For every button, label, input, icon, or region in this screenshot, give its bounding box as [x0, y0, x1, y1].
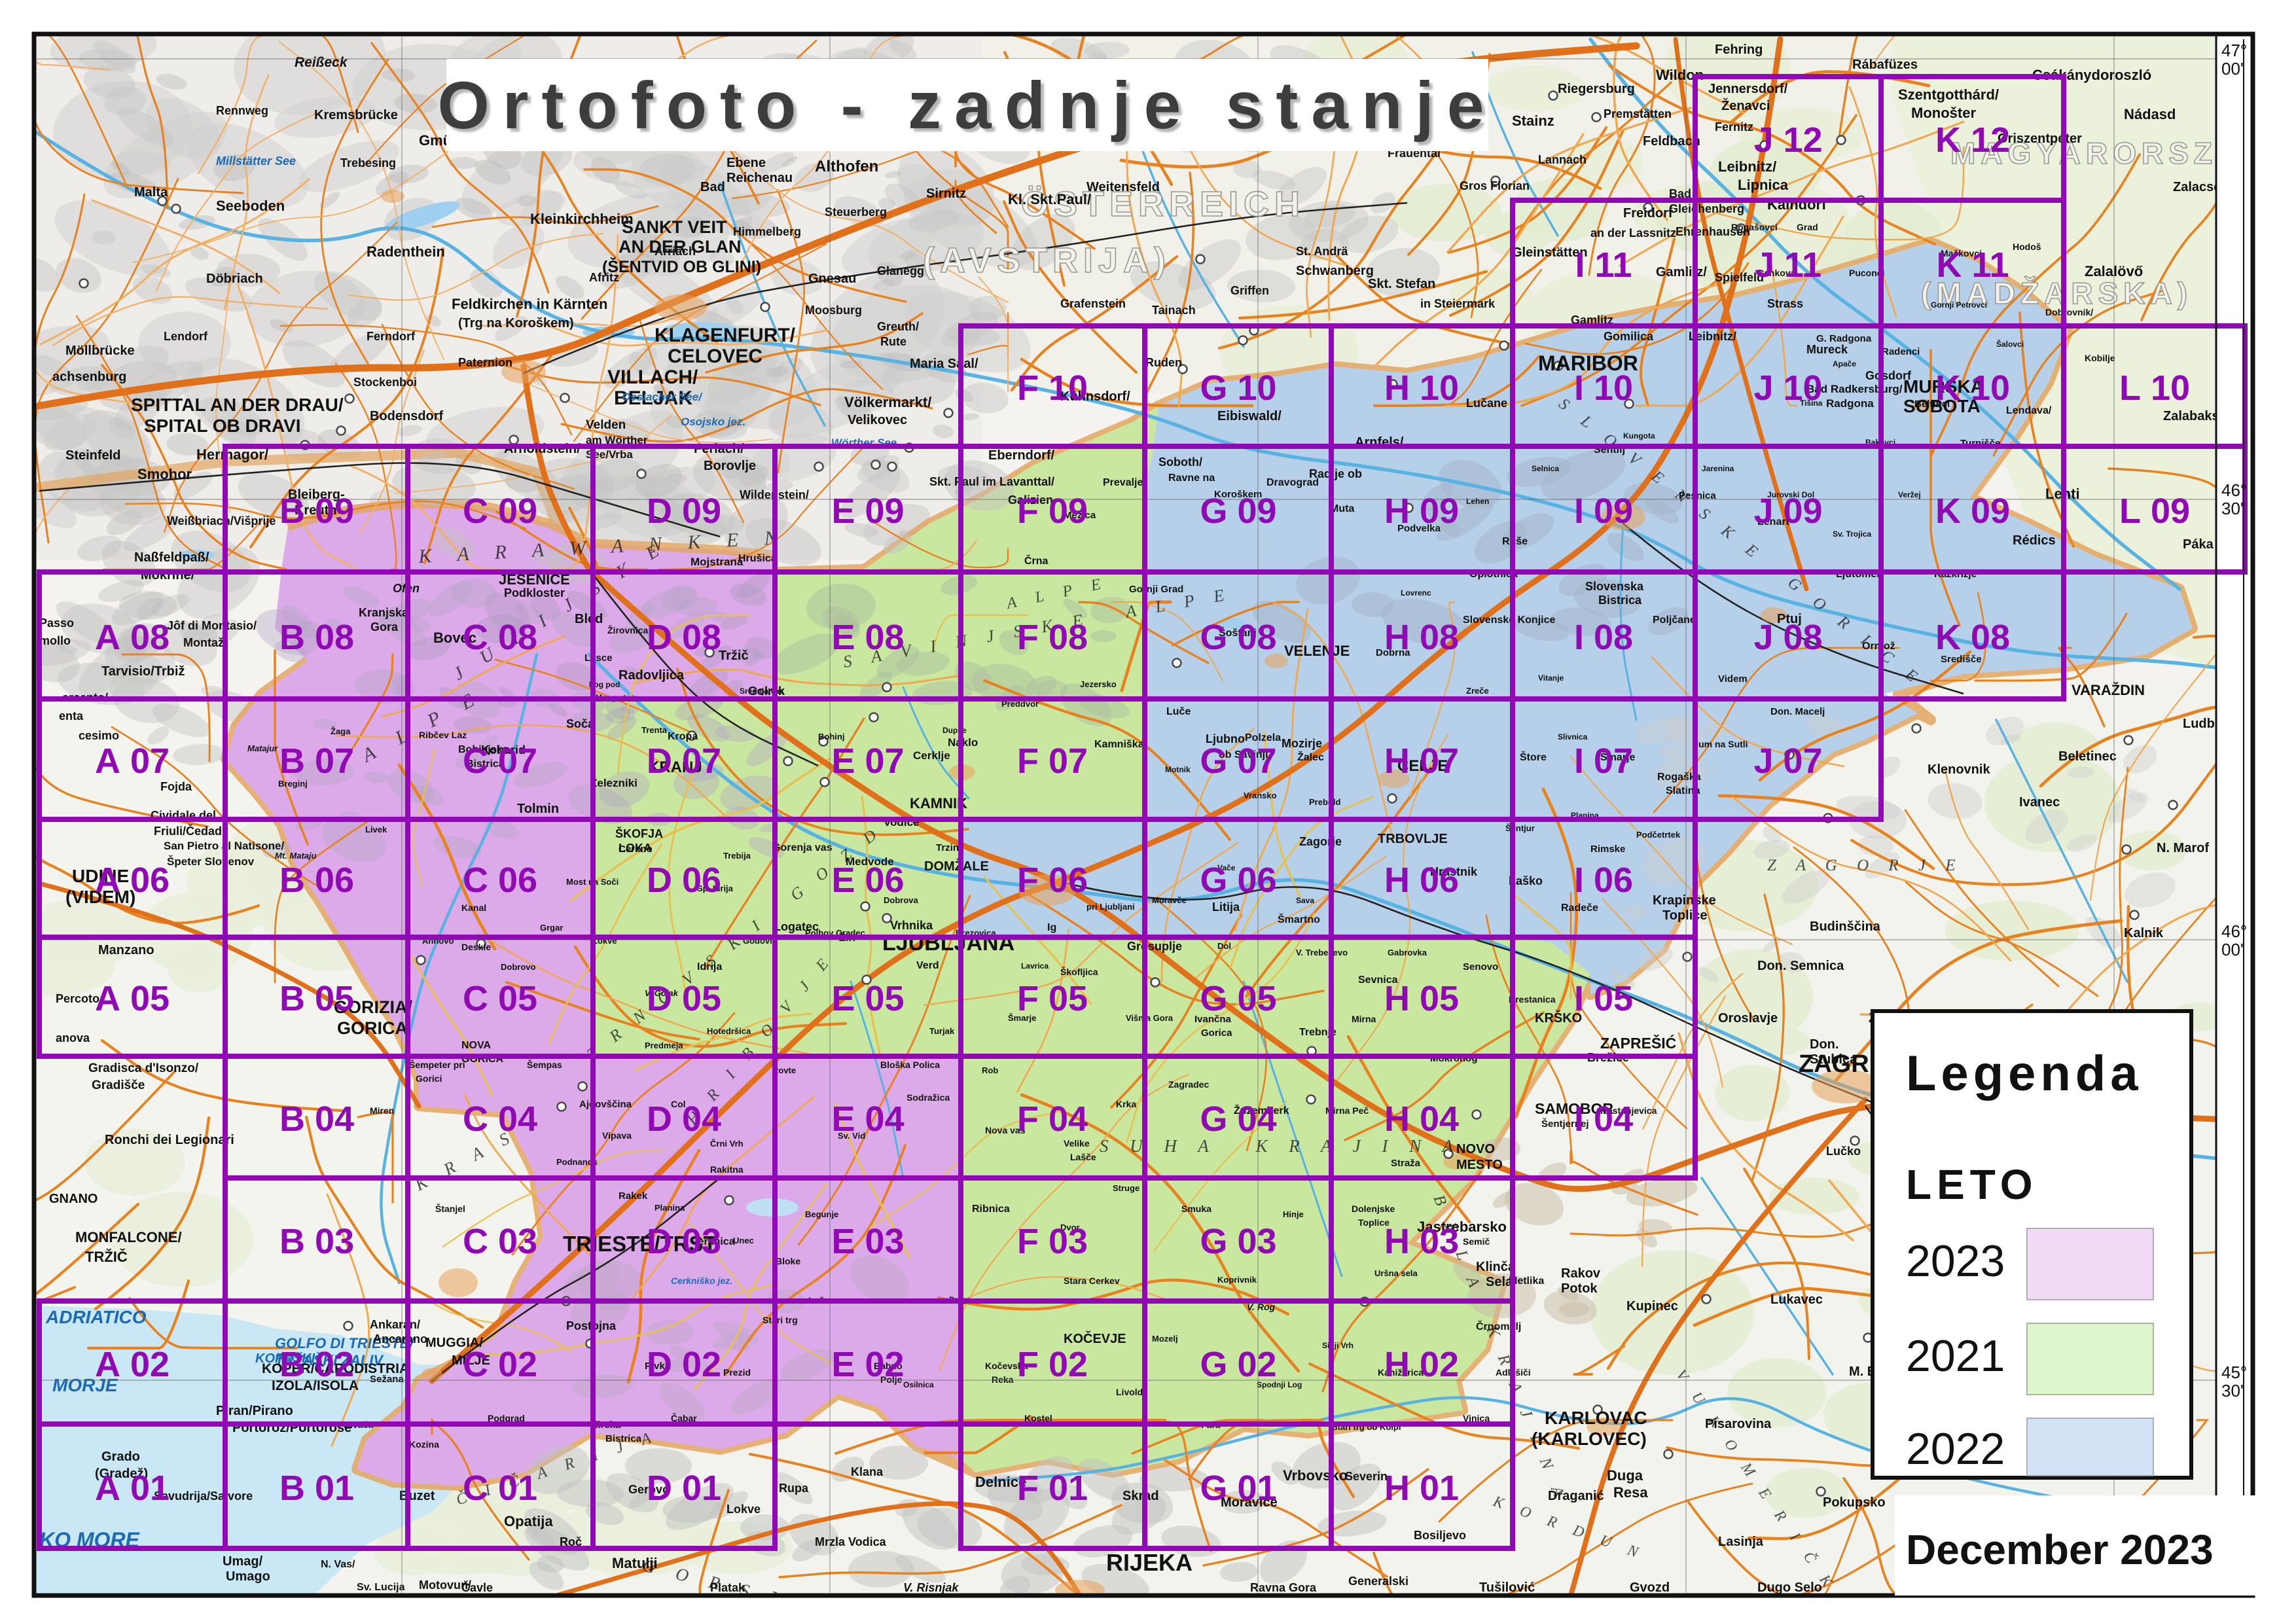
- svg-text:Gornji Petrovci: Gornji Petrovci: [1931, 300, 1987, 310]
- svg-text:ADRIATICO: ADRIATICO: [45, 1307, 147, 1327]
- svg-text:Rennweg: Rennweg: [216, 104, 268, 117]
- svg-text:Gabrovka: Gabrovka: [1388, 948, 1427, 957]
- svg-text:KARLOVAC: KARLOVAC: [1545, 1408, 1647, 1428]
- svg-text:Kozina: Kozina: [409, 1439, 439, 1450]
- svg-text:Lovrenc: Lovrenc: [1401, 588, 1431, 597]
- svg-text:Völkermarkt/: Völkermarkt/: [844, 394, 931, 410]
- svg-text:G 05: G 05: [1200, 979, 1276, 1018]
- svg-text:VILLACH/: VILLACH/: [607, 366, 698, 388]
- svg-text:an der Lassnitz: an der Lassnitz: [1590, 226, 1676, 240]
- svg-text:Eibiswald/: Eibiswald/: [1217, 409, 1282, 423]
- svg-text:H 10: H 10: [1384, 368, 1459, 408]
- svg-text:Rakek: Rakek: [619, 1190, 648, 1202]
- svg-text:Draganić: Draganić: [1548, 1489, 1604, 1503]
- svg-text:Pokupsko: Pokupsko: [1823, 1495, 1886, 1510]
- svg-text:Ancarano: Ancarano: [373, 1332, 427, 1346]
- svg-text:L 10: L 10: [2119, 368, 2190, 408]
- svg-text:H 04: H 04: [1384, 1099, 1459, 1139]
- svg-text:00': 00': [2221, 59, 2244, 79]
- svg-text:Trzin: Trzin: [936, 842, 959, 853]
- svg-text:G 04: G 04: [1200, 1099, 1276, 1139]
- svg-text:Generalski: Generalski: [1348, 1575, 1408, 1588]
- svg-text:Semič: Semič: [1463, 1236, 1490, 1247]
- svg-text:Vipava: Vipava: [602, 1130, 632, 1141]
- svg-text:Trebija: Trebija: [723, 851, 751, 861]
- svg-text:Vrhnika: Vrhnika: [890, 919, 933, 932]
- svg-text:Radenci: Radenci: [1882, 346, 1920, 357]
- svg-text:I 05: I 05: [1574, 979, 1633, 1018]
- svg-text:Poljčane: Poljčane: [1653, 615, 1696, 626]
- svg-text:Gamlitz/: Gamlitz/: [1656, 265, 1707, 279]
- svg-text:Sirnitz: Sirnitz: [926, 187, 966, 201]
- svg-text:Passo: Passo: [39, 616, 74, 630]
- svg-text:SPITTAL AN DER DRAU/: SPITTAL AN DER DRAU/: [131, 395, 344, 415]
- svg-text:December 2023: December 2023: [1906, 1526, 2214, 1573]
- svg-text:Zreče: Zreče: [1466, 686, 1489, 696]
- svg-text:D 02: D 02: [647, 1345, 721, 1384]
- svg-text:Skt. Stefan: Skt. Stefan: [1368, 277, 1435, 291]
- svg-text:Kalnik: Kalnik: [2124, 926, 2164, 940]
- svg-text:Zagorje: Zagorje: [1299, 835, 1342, 848]
- svg-text:Stara Cerkev: Stara Cerkev: [1064, 1275, 1120, 1286]
- svg-text:30': 30': [2221, 499, 2244, 518]
- svg-text:Kropa: Kropa: [668, 731, 698, 742]
- svg-text:B 07: B 07: [279, 741, 354, 781]
- svg-text:TRBOVLJE: TRBOVLJE: [1378, 832, 1448, 846]
- svg-text:Gnesau: Gnesau: [808, 272, 856, 286]
- svg-text:Tarvisio/Trbiž: Tarvisio/Trbiž: [101, 664, 185, 679]
- svg-text:Gros Florian: Gros Florian: [1460, 179, 1530, 192]
- svg-text:Železniki: Železniki: [590, 777, 637, 789]
- svg-text:Ravna Gora: Ravna Gora: [1250, 1581, 1317, 1594]
- svg-text:Senovo: Senovo: [1463, 961, 1498, 972]
- svg-text:Sv. Trojica: Sv. Trojica: [1833, 529, 1871, 539]
- svg-text:Moosburg: Moosburg: [805, 304, 862, 317]
- svg-text:Weißbriach/Višprije: Weißbriach/Višprije: [167, 514, 276, 527]
- svg-text:Moravče: Moravče: [1152, 895, 1187, 905]
- svg-text:Velike: Velike: [1064, 1138, 1090, 1149]
- svg-text:Feldkirchen in Kärnten: Feldkirchen in Kärnten: [452, 296, 607, 312]
- svg-text:Lendorf: Lendorf: [164, 330, 208, 343]
- svg-text:Lašče: Lašče: [1070, 1152, 1096, 1162]
- svg-text:J 08: J 08: [1753, 618, 1822, 657]
- svg-text:Jôf di Montasio/: Jôf di Montasio/: [167, 619, 257, 632]
- svg-text:Šentjur: Šentjur: [1505, 823, 1535, 833]
- svg-text:ŠKOFJA: ŠKOFJA: [615, 827, 663, 840]
- svg-text:C 06: C 06: [463, 861, 537, 900]
- svg-text:Podčetrtek: Podčetrtek: [1636, 830, 1681, 840]
- svg-text:Prebold: Prebold: [1309, 797, 1340, 807]
- svg-text:Bistrica: Bistrica: [605, 1433, 642, 1444]
- svg-text:D 07: D 07: [647, 741, 721, 781]
- svg-text:Grad: Grad: [1797, 222, 1818, 232]
- svg-text:Žaga: Žaga: [331, 726, 351, 736]
- svg-text:Bistrica: Bistrica: [1598, 594, 1642, 607]
- svg-text:E 03: E 03: [831, 1222, 904, 1261]
- svg-text:Gomilica: Gomilica: [1604, 330, 1654, 343]
- svg-text:Lavrica: Lavrica: [1021, 961, 1049, 971]
- svg-text:Selnica: Selnica: [1532, 464, 1559, 473]
- svg-text:(ŠENTVID OB GLINI): (ŠENTVID OB GLINI): [602, 257, 761, 276]
- svg-text:Bosiljevo: Bosiljevo: [1414, 1529, 1466, 1542]
- svg-text:Grosuplje: Grosuplje: [1127, 940, 1182, 953]
- svg-text:Jarenina: Jarenina: [1702, 464, 1734, 473]
- svg-text:Mrzla Vodica: Mrzla Vodica: [815, 1535, 887, 1548]
- svg-text:Šempas: Šempas: [527, 1059, 562, 1070]
- svg-text:Percoto: Percoto: [56, 992, 99, 1005]
- svg-text:Sinji Vrh: Sinji Vrh: [1322, 1341, 1354, 1350]
- svg-text:SPITAL OB DRAVI: SPITAL OB DRAVI: [144, 416, 301, 436]
- svg-text:E 06: E 06: [831, 861, 904, 900]
- svg-text:Idrija: Idrija: [697, 961, 722, 972]
- svg-text:Reichenau: Reichenau: [726, 171, 793, 185]
- svg-text:pri Ljubljani: pri Ljubljani: [1086, 902, 1135, 912]
- svg-text:Lannach: Lannach: [1538, 153, 1587, 166]
- svg-text:Dol: Dol: [1217, 941, 1231, 951]
- svg-text:Kanal: Kanal: [461, 902, 486, 913]
- svg-text:Lasinja: Lasinja: [1718, 1535, 1764, 1549]
- svg-text:Mirna: Mirna: [1352, 1014, 1376, 1024]
- svg-text:DOMŽALE: DOMŽALE: [924, 858, 989, 874]
- svg-text:Tolmin: Tolmin: [517, 802, 559, 816]
- svg-text:Logatec: Logatec: [774, 920, 819, 933]
- svg-text:Stainz: Stainz: [1512, 113, 1554, 129]
- svg-text:Friuli/Čedad: Friuli/Čedad: [154, 824, 222, 838]
- svg-text:B 06: B 06: [279, 861, 354, 900]
- svg-text:K 10: K 10: [1935, 368, 2010, 408]
- svg-text:B 01: B 01: [279, 1469, 354, 1508]
- svg-text:Stari trg: Stari trg: [762, 1315, 798, 1325]
- svg-text:Ravne na: Ravne na: [1168, 473, 1215, 484]
- svg-text:Rogašovci: Rogašovci: [1731, 222, 1778, 232]
- svg-text:Klenovnik: Klenovnik: [1928, 762, 1990, 777]
- svg-text:MONFALCONE/: MONFALCONE/: [75, 1229, 182, 1245]
- svg-text:Borovlje: Borovlje: [704, 459, 756, 473]
- svg-text:Opatija: Opatija: [504, 1513, 553, 1529]
- svg-text:Ankaran/: Ankaran/: [370, 1318, 420, 1331]
- svg-text:C 01: C 01: [463, 1469, 537, 1508]
- svg-text:Skrad: Skrad: [1122, 1489, 1159, 1503]
- svg-text:C 04: C 04: [463, 1099, 537, 1139]
- svg-text:NOVO: NOVO: [1456, 1142, 1495, 1156]
- svg-text:in Steiermark: in Steiermark: [1420, 297, 1496, 310]
- svg-text:Ossiacher See/: Ossiacher See/: [622, 391, 703, 403]
- svg-text:Smohor: Smohor: [137, 466, 192, 482]
- svg-text:GORICA: GORICA: [337, 1018, 408, 1038]
- svg-text:Riegersburg: Riegersburg: [1558, 82, 1635, 96]
- svg-text:anova: anova: [56, 1031, 90, 1044]
- svg-text:Trebesing: Trebesing: [340, 156, 396, 169]
- svg-text:cesimo: cesimo: [79, 729, 119, 742]
- svg-text:Lučane: Lučane: [1466, 397, 1507, 410]
- svg-text:Stockenboi: Stockenboi: [353, 376, 417, 389]
- svg-text:Ženavci: Ženavci: [1721, 98, 1770, 113]
- svg-text:Jezersko: Jezersko: [1080, 679, 1117, 689]
- svg-text:Strass: Strass: [1767, 297, 1803, 310]
- svg-text:Mt. Mataju: Mt. Mataju: [275, 851, 317, 861]
- svg-text:I 06: I 06: [1574, 861, 1633, 900]
- svg-text:RIJEKA: RIJEKA: [1106, 1549, 1193, 1576]
- svg-text:L 09: L 09: [2119, 491, 2190, 531]
- svg-text:Žirovnica: Žirovnica: [607, 624, 648, 635]
- svg-text:Toplice: Toplice: [1662, 908, 1708, 923]
- svg-text:Himmelberg: Himmelberg: [733, 225, 801, 238]
- svg-text:Mureck: Mureck: [1806, 343, 1848, 356]
- svg-text:Struge: Struge: [1113, 1183, 1139, 1193]
- svg-text:TRŽIČ: TRŽIČ: [85, 1249, 128, 1265]
- svg-text:Osilnica: Osilnica: [903, 1380, 934, 1389]
- svg-text:NOVA: NOVA: [461, 1040, 491, 1051]
- svg-text:B 09: B 09: [279, 491, 354, 531]
- svg-text:Don.: Don.: [1810, 1037, 1839, 1052]
- svg-text:Grado: Grado: [101, 1450, 140, 1464]
- svg-text:Sv. Lucija: Sv. Lucija: [357, 1582, 405, 1593]
- svg-text:A 02: A 02: [95, 1345, 170, 1384]
- svg-text:Lukavec: Lukavec: [1770, 1293, 1823, 1307]
- svg-text:Hodoš: Hodoš: [2013, 241, 2041, 252]
- svg-text:Krka: Krka: [1116, 1099, 1136, 1109]
- svg-text:Potok: Potok: [1561, 1281, 1598, 1296]
- svg-text:Lendava/: Lendava/: [2006, 405, 2052, 416]
- svg-text:Šmartno: Šmartno: [1278, 913, 1320, 925]
- svg-text:A 06: A 06: [95, 861, 170, 900]
- svg-text:Ferndorf: Ferndorf: [367, 330, 416, 343]
- svg-text:Trenta: Trenta: [641, 725, 668, 735]
- svg-text:H 09: H 09: [1384, 491, 1459, 531]
- svg-text:Dobrovo: Dobrovo: [501, 962, 536, 972]
- svg-text:Ebene: Ebene: [726, 156, 766, 170]
- svg-text:Severin: Severin: [1345, 1470, 1388, 1483]
- svg-text:G 02: G 02: [1200, 1345, 1276, 1384]
- svg-text:Hotedršica: Hotedršica: [707, 1026, 751, 1036]
- svg-text:Hinje: Hinje: [1283, 1209, 1304, 1219]
- svg-text:J 07: J 07: [1753, 741, 1822, 781]
- svg-text:Maria Saal/: Maria Saal/: [910, 357, 978, 371]
- svg-text:Kl. Skt.Paul/: Kl. Skt.Paul/: [1008, 191, 1091, 207]
- svg-text:Kungota: Kungota: [1623, 431, 1655, 440]
- svg-text:F 08: F 08: [1017, 618, 1088, 657]
- svg-text:Štore: Štore: [1520, 751, 1547, 763]
- svg-text:H 08: H 08: [1384, 618, 1459, 657]
- svg-text:N. Marof: N. Marof: [2157, 841, 2209, 855]
- svg-text:Dobrovnik/: Dobrovnik/: [2045, 307, 2093, 317]
- svg-text:Škofljica: Škofljica: [1060, 966, 1098, 977]
- svg-text:E 08: E 08: [831, 618, 904, 657]
- svg-text:Reißeck: Reißeck: [295, 55, 348, 70]
- svg-text:Mozelj: Mozelj: [1152, 1334, 1178, 1344]
- svg-text:V. Risnjak: V. Risnjak: [903, 1581, 959, 1594]
- svg-text:E 07: E 07: [831, 741, 904, 781]
- svg-text:45°: 45°: [2221, 1363, 2247, 1382]
- svg-text:Dugo Selo: Dugo Selo: [1757, 1580, 1822, 1595]
- svg-text:Buzet: Buzet: [399, 1489, 435, 1503]
- svg-text:Schwanberg: Schwanberg: [1296, 264, 1374, 278]
- svg-text:Arriach: Arriach: [655, 245, 696, 258]
- svg-text:Ortofoto - zadnje stanje: Ortofoto - zadnje stanje: [437, 68, 1497, 143]
- svg-text:Stubica: Stubica: [1810, 1052, 1857, 1067]
- svg-text:Višnja Gora: Višnja Gora: [1126, 1013, 1174, 1023]
- svg-text:Črna: Črna: [1024, 554, 1049, 567]
- svg-text:C 03: C 03: [463, 1222, 537, 1261]
- svg-text:B 05: B 05: [279, 979, 354, 1018]
- svg-text:K 12: K 12: [1935, 120, 2010, 160]
- svg-text:Gleichenberg: Gleichenberg: [1669, 202, 1744, 215]
- svg-text:Šalovci: Šalovci: [1996, 339, 2024, 349]
- svg-text:Veržej: Veržej: [1898, 490, 1921, 499]
- svg-text:Livold: Livold: [1116, 1387, 1143, 1397]
- svg-text:KLAGENFURT/: KLAGENFURT/: [655, 325, 796, 346]
- svg-text:Vitanje: Vitanje: [1538, 673, 1564, 683]
- svg-text:Don. Semnica: Don. Semnica: [1757, 959, 1844, 973]
- svg-text:Rakov: Rakov: [1561, 1266, 1601, 1281]
- svg-text:2022: 2022: [1906, 1424, 2005, 1474]
- svg-text:Althofen: Althofen: [815, 158, 878, 175]
- svg-text:Kremsbrücke: Kremsbrücke: [314, 108, 398, 122]
- svg-text:D 09: D 09: [647, 491, 721, 531]
- svg-text:LETO: LETO: [1906, 1161, 2038, 1208]
- svg-text:(KARLOVEC): (KARLOVEC): [1532, 1429, 1647, 1449]
- svg-text:Klinča: Klinča: [1476, 1260, 1516, 1274]
- svg-text:B 02: B 02: [279, 1345, 354, 1384]
- svg-text:Brestanica: Brestanica: [1509, 994, 1556, 1005]
- svg-text:Žalec: Žalec: [1297, 751, 1324, 763]
- svg-text:Oroslavje: Oroslavje: [1718, 1011, 1778, 1026]
- svg-text:Eberndorf/: Eberndorf/: [988, 448, 1055, 463]
- svg-text:Gornji Grad: Gornji Grad: [1129, 584, 1183, 595]
- svg-text:F 04: F 04: [1017, 1099, 1088, 1139]
- svg-text:Sava: Sava: [1296, 896, 1314, 905]
- svg-text:Sežana: Sežana: [370, 1374, 404, 1385]
- svg-text:Reka: Reka: [992, 1374, 1014, 1385]
- svg-text:Soboth/: Soboth/: [1158, 455, 1202, 469]
- svg-text:G 07: G 07: [1200, 741, 1276, 781]
- svg-text:Rédics: Rédics: [2013, 533, 2056, 548]
- svg-text:Gvozd: Gvozd: [1630, 1580, 1670, 1595]
- svg-text:Cerklje: Cerklje: [913, 749, 950, 762]
- svg-text:Lokve: Lokve: [726, 1503, 761, 1516]
- svg-text:F 02: F 02: [1017, 1345, 1088, 1384]
- svg-text:Platak: Platak: [710, 1581, 745, 1594]
- svg-text:VELENJE: VELENJE: [1284, 643, 1350, 659]
- svg-text:Nádasd: Nádasd: [2124, 106, 2176, 122]
- svg-text:Bodensdorf: Bodensdorf: [370, 409, 444, 423]
- svg-text:Videm: Videm: [1718, 673, 1748, 685]
- svg-text:Tušilović: Tušilović: [1479, 1580, 1535, 1595]
- svg-text:KOČEVJE: KOČEVJE: [1064, 1330, 1126, 1346]
- svg-text:Planina: Planina: [655, 1203, 685, 1213]
- svg-text:Mozirje: Mozirje: [1282, 737, 1322, 750]
- svg-text:F 06: F 06: [1017, 861, 1088, 900]
- svg-text:Prevalje: Prevalje: [1103, 477, 1143, 488]
- svg-text:Zagradec: Zagradec: [1168, 1079, 1209, 1090]
- svg-text:47°: 47°: [2221, 41, 2247, 60]
- svg-text:VARAŽDIN: VARAŽDIN: [2072, 682, 2145, 698]
- svg-text:Afritz: Afritz: [589, 271, 619, 284]
- svg-text:Resa: Resa: [1613, 1484, 1648, 1501]
- svg-text:Livek: Livek: [365, 825, 387, 834]
- svg-text:H 05: H 05: [1384, 979, 1459, 1018]
- svg-text:Gora: Gora: [370, 620, 399, 633]
- svg-text:Velden: Velden: [586, 418, 626, 432]
- svg-text:Sodražica: Sodražica: [906, 1092, 950, 1103]
- svg-text:Weitensfeld: Weitensfeld: [1086, 180, 1160, 194]
- svg-text:D 03: D 03: [647, 1222, 721, 1261]
- svg-text:F 07: F 07: [1017, 741, 1088, 781]
- svg-text:Koprivnik: Koprivnik: [1217, 1275, 1257, 1285]
- svg-text:Őriszentpéter: Őriszentpéter: [1998, 131, 2082, 146]
- svg-text:2023: 2023: [1906, 1236, 2005, 1286]
- svg-text:Tržič: Tržič: [719, 649, 749, 663]
- svg-text:46°: 46°: [2221, 921, 2247, 941]
- svg-text:Monošter: Monošter: [1911, 105, 1976, 121]
- svg-text:Greuth/: Greuth/: [877, 320, 919, 333]
- svg-text:Jennersdorf/: Jennersdorf/: [1708, 82, 1788, 96]
- svg-text:C 05: C 05: [463, 979, 537, 1018]
- svg-text:30': 30': [2221, 1381, 2244, 1400]
- svg-text:Leibnitz/: Leibnitz/: [1718, 158, 1776, 175]
- svg-text:Bled: Bled: [575, 612, 603, 626]
- svg-text:E 04: E 04: [831, 1099, 904, 1139]
- svg-text:Matulji: Matulji: [612, 1555, 658, 1571]
- svg-text:Osojsko jez.: Osojsko jez.: [681, 416, 745, 428]
- svg-text:B 04: B 04: [279, 1099, 354, 1139]
- svg-text:I 09: I 09: [1574, 491, 1633, 531]
- svg-text:Gorica: Gorica: [1201, 1027, 1232, 1039]
- svg-text:E 02: E 02: [831, 1345, 904, 1384]
- svg-text:Cerkniško jez.: Cerkniško jez.: [671, 1275, 732, 1286]
- svg-text:(Trg na Koroškem): (Trg na Koroškem): [458, 316, 574, 330]
- svg-text:G 03: G 03: [1200, 1222, 1276, 1261]
- svg-text:Slovenske Konjice: Slovenske Konjice: [1463, 615, 1555, 626]
- svg-text:Fojda: Fojda: [160, 780, 192, 793]
- svg-text:I 10: I 10: [1574, 368, 1633, 408]
- svg-text:J 09: J 09: [1753, 491, 1822, 531]
- svg-text:Legenda: Legenda: [1906, 1046, 2143, 1101]
- svg-text:Páka: Páka: [2183, 537, 2214, 552]
- svg-text:I 07: I 07: [1574, 741, 1633, 781]
- svg-text:Grafenstein: Grafenstein: [1060, 297, 1126, 310]
- svg-text:G 10: G 10: [1200, 368, 1276, 408]
- svg-text:Kamniška: Kamniška: [1094, 739, 1144, 750]
- svg-text:Kobilje: Kobilje: [2085, 353, 2115, 363]
- svg-text:K 09: K 09: [1935, 491, 2010, 531]
- svg-text:A 05: A 05: [95, 979, 170, 1018]
- svg-text:D 06: D 06: [647, 861, 721, 900]
- svg-text:Skt. Paul im Lavanttal/: Skt. Paul im Lavanttal/: [929, 475, 1054, 488]
- svg-text:Špeter Slovenov: Špeter Slovenov: [167, 855, 255, 868]
- svg-text:Szentgotthárd/: Szentgotthárd/: [1898, 86, 1999, 103]
- svg-text:St. Andrä: St. Andrä: [1296, 245, 1348, 258]
- svg-text:Ig: Ig: [1047, 922, 1056, 933]
- svg-text:I 08: I 08: [1574, 618, 1633, 657]
- svg-text:Krapinske: Krapinske: [1653, 893, 1716, 908]
- svg-text:Rupa: Rupa: [779, 1482, 809, 1495]
- svg-text:Lehen: Lehen: [1466, 497, 1489, 506]
- svg-text:Apače: Apače: [1833, 359, 1856, 368]
- svg-text:D 05: D 05: [647, 979, 721, 1018]
- svg-text:Radenthein: Radenthein: [367, 243, 445, 260]
- svg-text:Luče: Luče: [1166, 706, 1191, 717]
- svg-text:Radeče: Radeče: [1561, 902, 1598, 914]
- svg-text:mollo: mollo: [39, 634, 71, 647]
- svg-text:E 05: E 05: [831, 979, 904, 1018]
- svg-text:Lučko: Lučko: [1826, 1145, 1861, 1158]
- svg-text:A 08: A 08: [95, 618, 170, 657]
- svg-text:C 07: C 07: [463, 741, 537, 781]
- svg-text:Dravograd: Dravograd: [1266, 477, 1319, 488]
- svg-text:Begunje: Begunje: [805, 1209, 838, 1219]
- svg-text:Štanjel: Štanjel: [435, 1203, 465, 1214]
